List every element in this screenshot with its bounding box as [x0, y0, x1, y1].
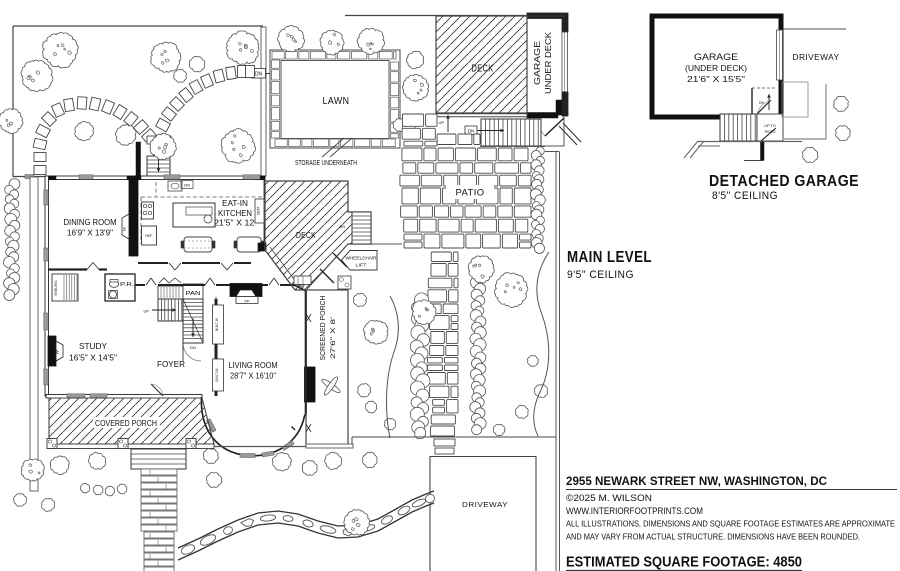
svg-text:GARAGE: GARAGE: [533, 41, 542, 85]
svg-text:27'6" X 8': 27'6" X 8': [330, 317, 337, 359]
svg-text:PAN: PAN: [186, 291, 201, 297]
svg-text:UP TO: UP TO: [764, 124, 775, 128]
svg-text:DECK: DECK: [296, 231, 316, 240]
svg-text:SEAT: SEAT: [257, 207, 261, 216]
svg-text:ALL ILLUSTRATIONS, DIMENSIONS: ALL ILLUSTRATIONS, DIMENSIONS AND SQUARE…: [566, 519, 895, 529]
svg-text:DN: DN: [190, 345, 196, 350]
svg-text:GARAGE: GARAGE: [694, 52, 738, 62]
svg-text:21'5" X 12': 21'5" X 12': [214, 219, 257, 228]
svg-text:9'5" CEILING: 9'5" CEILING: [567, 269, 634, 281]
svg-text:SHELVES: SHELVES: [54, 280, 58, 296]
svg-text:FP: FP: [56, 349, 60, 354]
svg-text:DRIVEWAY: DRIVEWAY: [462, 500, 508, 509]
svg-text:BUILT-IN: BUILT-IN: [215, 317, 219, 331]
svg-text:DN: DN: [340, 225, 346, 229]
svg-text:16'9" X 13'9": 16'9" X 13'9": [67, 229, 113, 238]
svg-text:FP: FP: [123, 226, 127, 231]
svg-text:STORAGE UNDERNEATH: STORAGE UNDERNEATH: [295, 160, 357, 167]
svg-text:21'6" X 15'5": 21'6" X 15'5": [687, 75, 745, 84]
svg-text:DRIVEWAY: DRIVEWAY: [793, 53, 840, 62]
svg-text:(UNDER DECK): (UNDER DECK): [685, 64, 747, 73]
svg-text:BUILT-IN: BUILT-IN: [215, 368, 219, 382]
svg-text:LIFT: LIFT: [356, 263, 367, 268]
svg-text:ESTIMATED SQUARE FOOTAGE: 4850: ESTIMATED SQUARE FOOTAGE: 4850: [566, 555, 802, 571]
svg-text:DN: DN: [184, 183, 190, 188]
svg-text:DN: DN: [255, 72, 263, 78]
svg-text:DINING ROOM: DINING ROOM: [64, 217, 117, 227]
svg-text:SCREENED PORCH: SCREENED PORCH: [320, 296, 327, 361]
svg-text:FOYER: FOYER: [157, 359, 185, 369]
svg-text:UNDER DECK: UNDER DECK: [544, 31, 553, 94]
svg-text:P.R.: P.R.: [120, 282, 134, 288]
svg-text:DETACHED GARAGE: DETACHED GARAGE: [709, 173, 859, 190]
svg-text:AND MAY VARY FROM ACTUAL STRUC: AND MAY VARY FROM ACTUAL STRUCTURE. DIME…: [566, 532, 860, 542]
svg-text:EAT-IN: EAT-IN: [222, 198, 248, 208]
svg-text:2955 NEWARK STREET NW, WASHING: 2955 NEWARK STREET NW, WASHINGTON, DC: [566, 476, 827, 488]
svg-text:DECK: DECK: [472, 64, 494, 75]
svg-text:KITCHEN: KITCHEN: [218, 208, 252, 218]
svg-text:DN: DN: [759, 101, 765, 105]
svg-text:WWW.INTERIORFOOTPRINTS.COM: WWW.INTERIORFOOTPRINTS.COM: [566, 506, 703, 517]
svg-text:MAIN LEVEL: MAIN LEVEL: [567, 249, 652, 266]
svg-text:8'5" CEILING: 8'5" CEILING: [712, 190, 778, 202]
svg-text:REF: REF: [145, 234, 153, 238]
svg-text:DN: DN: [468, 129, 475, 134]
svg-text:PATIO: PATIO: [456, 188, 485, 198]
svg-text:FP: FP: [244, 299, 249, 304]
svg-text:LIVING ROOM: LIVING ROOM: [229, 360, 278, 370]
svg-text:28'7" X 16'10": 28'7" X 16'10": [230, 372, 276, 381]
svg-text:©2025 M. WILSON: ©2025 M. WILSON: [566, 493, 652, 504]
svg-text:STUDY: STUDY: [79, 341, 107, 351]
svg-text:COVERED PORCH: COVERED PORCH: [95, 418, 157, 428]
svg-text:WHEELCHAIR: WHEELCHAIR: [346, 256, 377, 261]
svg-text:PATIO: PATIO: [765, 130, 776, 134]
svg-text:16'5" X 14'5": 16'5" X 14'5": [69, 354, 117, 363]
svg-text:UP: UP: [143, 309, 149, 314]
svg-text:UP: UP: [438, 120, 444, 125]
svg-text:LAWN: LAWN: [323, 96, 350, 107]
